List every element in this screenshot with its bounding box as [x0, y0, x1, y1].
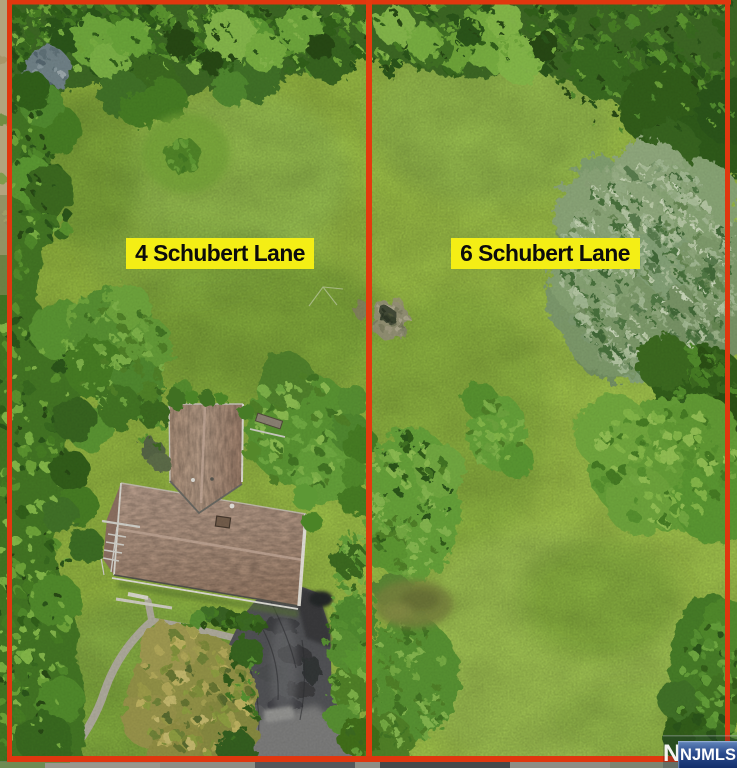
svg-text:6 Schubert Lane: 6 Schubert Lane — [460, 240, 630, 266]
svg-text:4 Schubert Lane: 4 Schubert Lane — [135, 240, 305, 266]
svg-text:NJMLS: NJMLS — [680, 746, 736, 764]
